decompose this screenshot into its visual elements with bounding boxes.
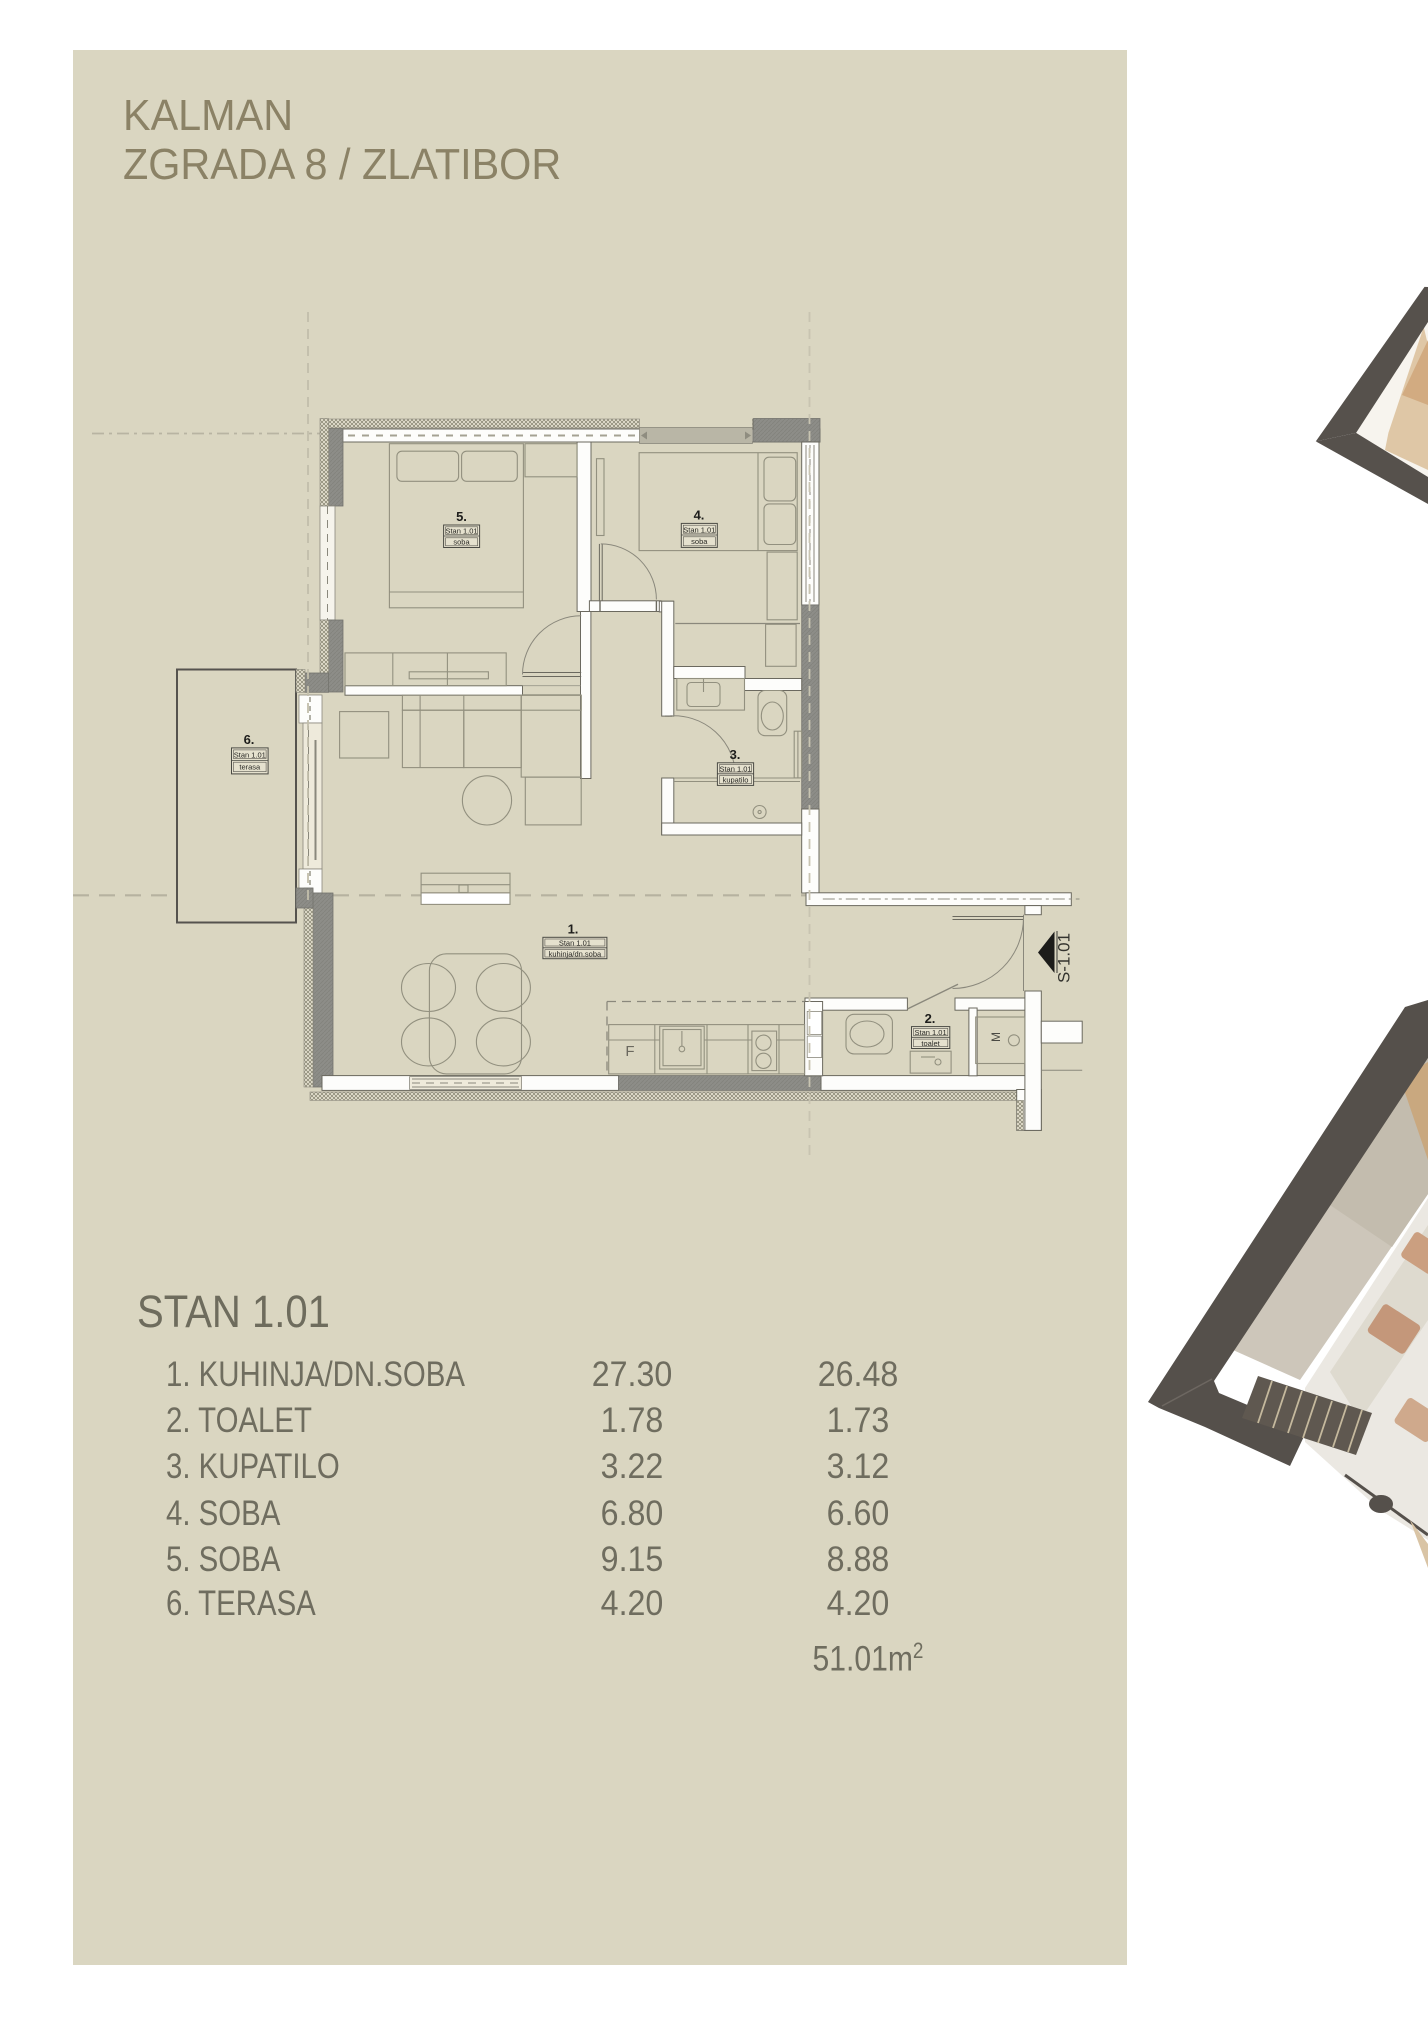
svg-text:6.: 6. — [244, 732, 255, 747]
svg-text:soba: soba — [453, 538, 470, 547]
svg-text:S-1.01: S-1.01 — [1055, 933, 1074, 983]
svg-text:kupatilo: kupatilo — [723, 775, 749, 784]
svg-text:5.: 5. — [456, 509, 467, 524]
svg-text:4.: 4. — [694, 508, 705, 523]
svg-text:terasa: terasa — [239, 763, 261, 772]
svg-text:1.: 1. — [568, 922, 579, 937]
svg-text:3.: 3. — [730, 747, 741, 762]
svg-text:F: F — [625, 1043, 634, 1060]
svg-text:soba: soba — [691, 537, 708, 546]
svg-text:2.: 2. — [925, 1011, 936, 1026]
svg-text:M: M — [989, 1032, 1003, 1042]
